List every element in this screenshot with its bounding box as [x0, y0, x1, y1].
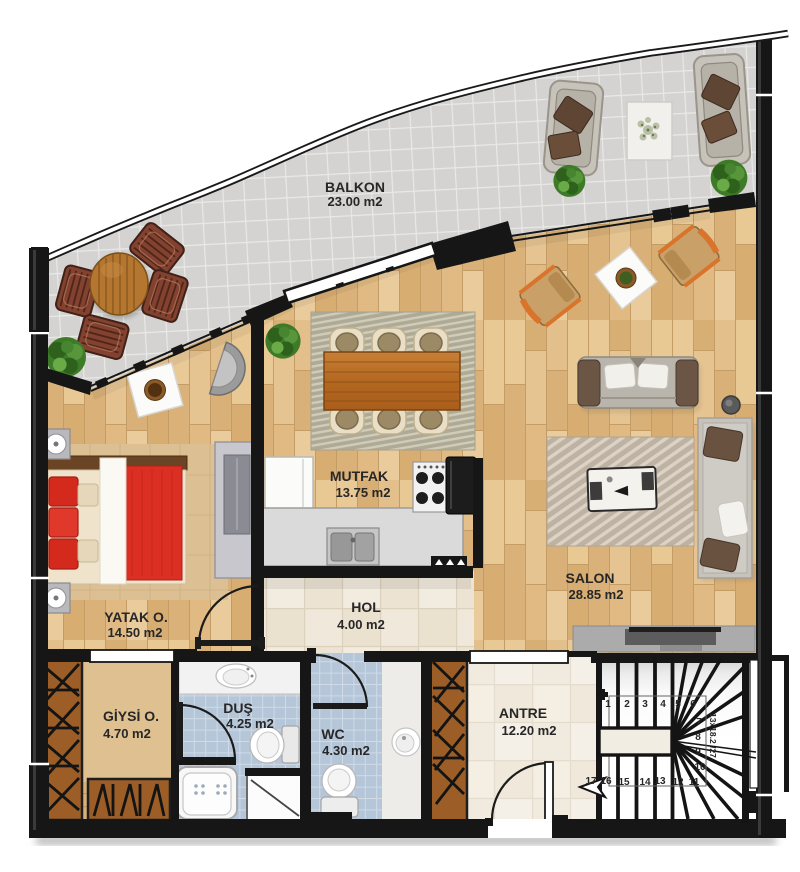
svg-text:2: 2 — [624, 699, 630, 710]
svg-text:4.30 m2: 4.30 m2 — [322, 743, 370, 758]
svg-text:9: 9 — [695, 747, 701, 758]
svg-text:DUŞ: DUŞ — [223, 700, 253, 716]
svg-text:WC: WC — [321, 726, 344, 742]
svg-text:13.75 m2: 13.75 m2 — [336, 485, 391, 500]
svg-text:16: 16 — [600, 776, 612, 787]
svg-text:13: 13 — [654, 776, 666, 787]
svg-text:14: 14 — [639, 777, 651, 788]
svg-text:5: 5 — [675, 699, 681, 710]
svg-text:13x18.2 /27: 13x18.2 /27 — [708, 713, 718, 758]
svg-text:HOL: HOL — [351, 599, 381, 615]
svg-text:4: 4 — [660, 699, 666, 710]
svg-text:SALON: SALON — [566, 570, 615, 586]
svg-text:GİYSİ O.: GİYSİ O. — [103, 708, 159, 724]
svg-text:ANTRE: ANTRE — [499, 705, 547, 721]
svg-text:10: 10 — [694, 762, 706, 773]
svg-text:4.00 m2: 4.00 m2 — [337, 617, 385, 632]
svg-text:14.50 m2: 14.50 m2 — [108, 625, 163, 640]
svg-text:1: 1 — [605, 699, 611, 710]
svg-text:12: 12 — [672, 777, 684, 788]
svg-text:6: 6 — [690, 699, 696, 710]
svg-text:4.25 m2: 4.25 m2 — [226, 716, 274, 731]
svg-text:BALKON: BALKON — [325, 179, 385, 195]
svg-text:23.00 m2: 23.00 m2 — [328, 194, 383, 209]
svg-text:MUTFAK: MUTFAK — [330, 468, 388, 484]
svg-text:28.85 m2: 28.85 m2 — [569, 587, 624, 602]
svg-text:4.70 m2: 4.70 m2 — [103, 726, 151, 741]
svg-text:11: 11 — [689, 777, 700, 788]
svg-text:3: 3 — [642, 699, 648, 710]
svg-text:17: 17 — [585, 776, 597, 787]
svg-text:15: 15 — [618, 777, 630, 788]
svg-text:YATAK O.: YATAK O. — [104, 609, 168, 625]
svg-text:8: 8 — [695, 732, 701, 743]
svg-text:12.20 m2: 12.20 m2 — [502, 723, 557, 738]
svg-text:7: 7 — [696, 717, 702, 728]
